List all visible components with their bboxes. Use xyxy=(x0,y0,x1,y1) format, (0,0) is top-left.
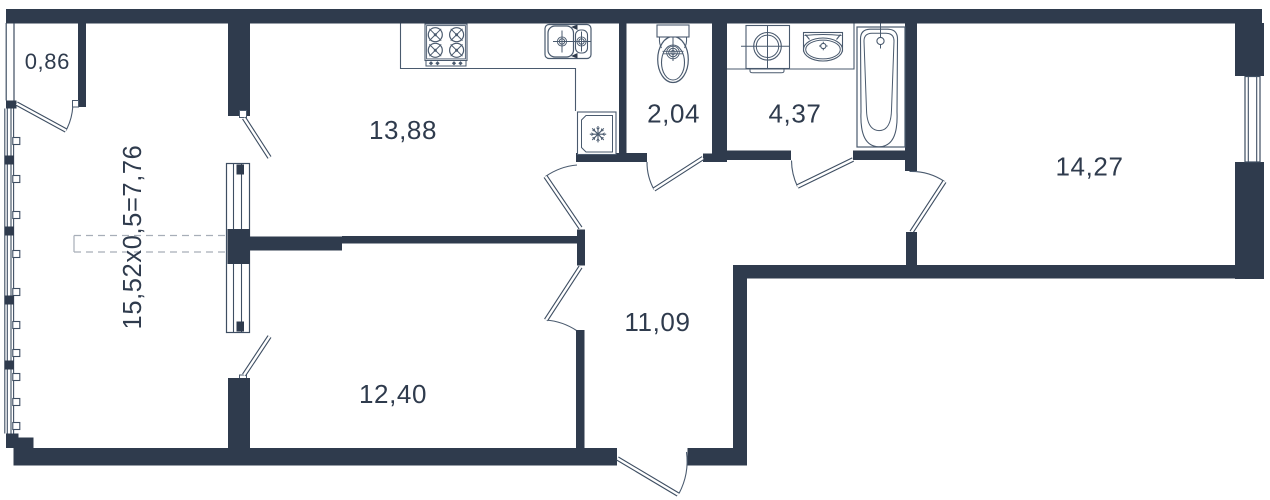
svg-text:14,27: 14,27 xyxy=(1055,152,1123,182)
svg-text:0,86: 0,86 xyxy=(25,49,70,74)
svg-text:12,40: 12,40 xyxy=(359,379,427,409)
svg-text:13,88: 13,88 xyxy=(369,115,437,145)
svg-text:2,04: 2,04 xyxy=(647,99,700,129)
svg-text:15,52x0,5=7,76: 15,52x0,5=7,76 xyxy=(119,145,147,330)
svg-text:4,37: 4,37 xyxy=(768,99,821,129)
svg-text:11,09: 11,09 xyxy=(624,307,690,337)
